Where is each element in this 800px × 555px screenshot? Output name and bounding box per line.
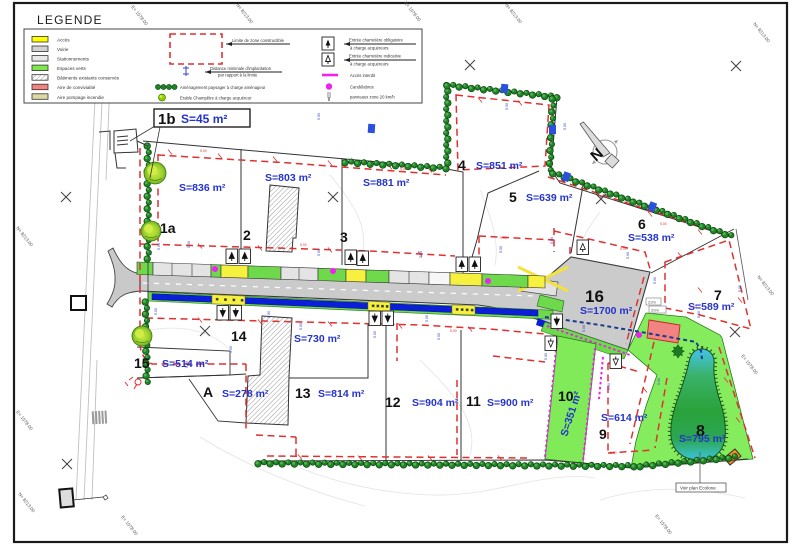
svg-text:9: 9 (599, 426, 607, 442)
svg-text:panneaux zone 20 km/h: panneaux zone 20 km/h (350, 95, 395, 100)
svg-text:11: 11 (466, 393, 481, 409)
svg-text:5.00: 5.00 (437, 333, 441, 340)
svg-text:5.00: 5.00 (300, 243, 307, 247)
svg-text:5.00: 5.00 (317, 113, 321, 120)
svg-text:5.00: 5.00 (563, 123, 567, 130)
svg-text:à charge acquéreurs: à charge acquéreurs (350, 62, 388, 67)
svg-text:5.00: 5.00 (187, 241, 191, 248)
svg-text:Erable Champêtre à charge acqu: Erable Champêtre à charge acquéreur (180, 96, 252, 101)
svg-text:5.00: 5.00 (657, 378, 661, 385)
svg-text:Espaces verts: Espaces verts (57, 66, 87, 71)
svg-text:S=803 m²: S=803 m² (265, 172, 312, 184)
svg-text:Candélabres: Candélabres (350, 85, 374, 90)
svg-text:5.00: 5.00 (610, 451, 617, 455)
svg-text:Aire pompage incendie: Aire pompage incendie (57, 95, 104, 100)
svg-text:LEGENDE: LEGENDE (37, 13, 103, 27)
svg-text:Limite de zone constructible: Limite de zone constructible (232, 38, 285, 43)
svg-text:5.00: 5.00 (299, 323, 303, 330)
svg-text:4: 4 (458, 157, 466, 173)
svg-text:S=814 m²: S=814 m² (318, 388, 365, 400)
svg-text:S=514 m²: S=514 m² (162, 358, 209, 370)
svg-text:1b: 1b (158, 111, 176, 128)
svg-text:Bâtiments existants conservés: Bâtiments existants conservés (57, 76, 120, 81)
svg-text:A: A (203, 384, 213, 400)
svg-text:S=730 m²: S=730 m² (294, 333, 341, 345)
svg-text:S=639 m²: S=639 m² (526, 192, 573, 204)
svg-text:Stationnements: Stationnements (57, 57, 90, 62)
svg-text:S=589 m²: S=589 m² (688, 301, 735, 313)
svg-text:5.00: 5.00 (505, 103, 509, 110)
svg-text:5.00: 5.00 (425, 315, 429, 322)
svg-text:S=795 m²: S=795 m² (679, 433, 726, 445)
svg-text:Entrée charretière indicative: Entrée charretière indicative (349, 54, 402, 59)
svg-text:Distance minimale d'implantati: Distance minimale d'implantation (210, 66, 272, 71)
svg-text:S=1700 m²: S=1700 m² (580, 305, 633, 317)
svg-text:5.00: 5.00 (317, 249, 321, 256)
svg-text:15: 15 (134, 355, 150, 371)
svg-text:S=881 m²: S=881 m² (363, 177, 410, 189)
svg-text:Accès interdit: Accès interdit (350, 73, 376, 78)
svg-text:2: 2 (243, 227, 251, 243)
svg-text:5.00: 5.00 (229, 346, 233, 353)
svg-text:par rapport à la limite: par rapport à la limite (218, 73, 258, 78)
svg-text:5.00: 5.00 (653, 277, 657, 284)
svg-text:Z2m: Z2m (648, 300, 657, 305)
svg-text:Voir plan Ecolone: Voir plan Ecolone (680, 486, 716, 491)
svg-text:S=614 m²: S=614 m² (601, 412, 648, 424)
svg-text:5.00: 5.00 (267, 311, 271, 318)
svg-text:13: 13 (295, 385, 311, 401)
svg-text:5.00: 5.00 (544, 353, 548, 360)
svg-text:Aire de convivialité: Aire de convivialité (57, 85, 96, 90)
svg-text:5.00: 5.00 (582, 325, 586, 332)
svg-text:5.00: 5.00 (607, 383, 611, 390)
svg-text:S=45 m²: S=45 m² (181, 112, 227, 126)
svg-text:Entrée charretière obligatoir: Entrée charretière obligatoire (349, 38, 404, 43)
svg-text:S=538 m²: S=538 m² (628, 232, 675, 244)
svg-text:12: 12 (385, 394, 401, 410)
svg-text:Accès: Accès (57, 38, 70, 43)
svg-text:5: 5 (509, 189, 517, 205)
svg-text:5.00: 5.00 (157, 243, 161, 250)
svg-text:S=851 m²: S=851 m² (476, 160, 523, 172)
svg-text:5.00: 5.00 (738, 285, 742, 292)
svg-text:Voirie: Voirie (57, 47, 69, 52)
svg-text:5.00: 5.00 (419, 251, 423, 258)
svg-text:6: 6 (638, 216, 646, 232)
svg-text:5.00: 5.00 (550, 237, 554, 244)
svg-text:à charge acquéreurs: à charge acquéreurs (350, 46, 388, 51)
svg-text:5.00: 5.00 (154, 308, 158, 315)
svg-text:5.00: 5.00 (620, 247, 627, 251)
svg-text:5.00: 5.00 (499, 246, 503, 253)
svg-text:5.00: 5.00 (200, 149, 207, 153)
svg-text:5.00: 5.00 (450, 329, 457, 333)
svg-text:Aménagement paysager à charge: Aménagement paysager à charge aménageur (180, 85, 266, 90)
svg-text:S=900 m²: S=900 m² (487, 397, 534, 409)
svg-text:3: 3 (340, 229, 348, 245)
svg-text:S=904 m²: S=904 m² (412, 397, 459, 409)
svg-text:5.00: 5.00 (626, 252, 630, 259)
svg-text:5.00: 5.00 (660, 222, 667, 226)
svg-text:1a: 1a (160, 220, 176, 236)
svg-text:14: 14 (231, 328, 247, 344)
svg-text:Z0m: Z0m (651, 308, 660, 313)
svg-text:S=278 m²: S=278 m² (222, 388, 269, 400)
svg-text:5.00: 5.00 (400, 167, 407, 171)
svg-text:5.00: 5.00 (500, 236, 507, 240)
svg-text:5.00: 5.00 (373, 331, 377, 338)
svg-text:16: 16 (585, 287, 604, 306)
svg-text:S=836 m²: S=836 m² (179, 182, 226, 194)
